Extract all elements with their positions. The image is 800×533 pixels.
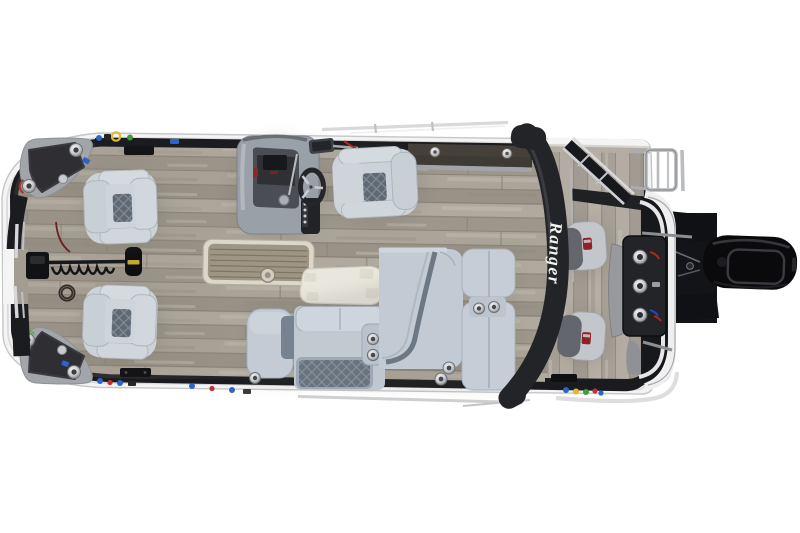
svg-text:Ranger: Ranger: [544, 221, 566, 286]
